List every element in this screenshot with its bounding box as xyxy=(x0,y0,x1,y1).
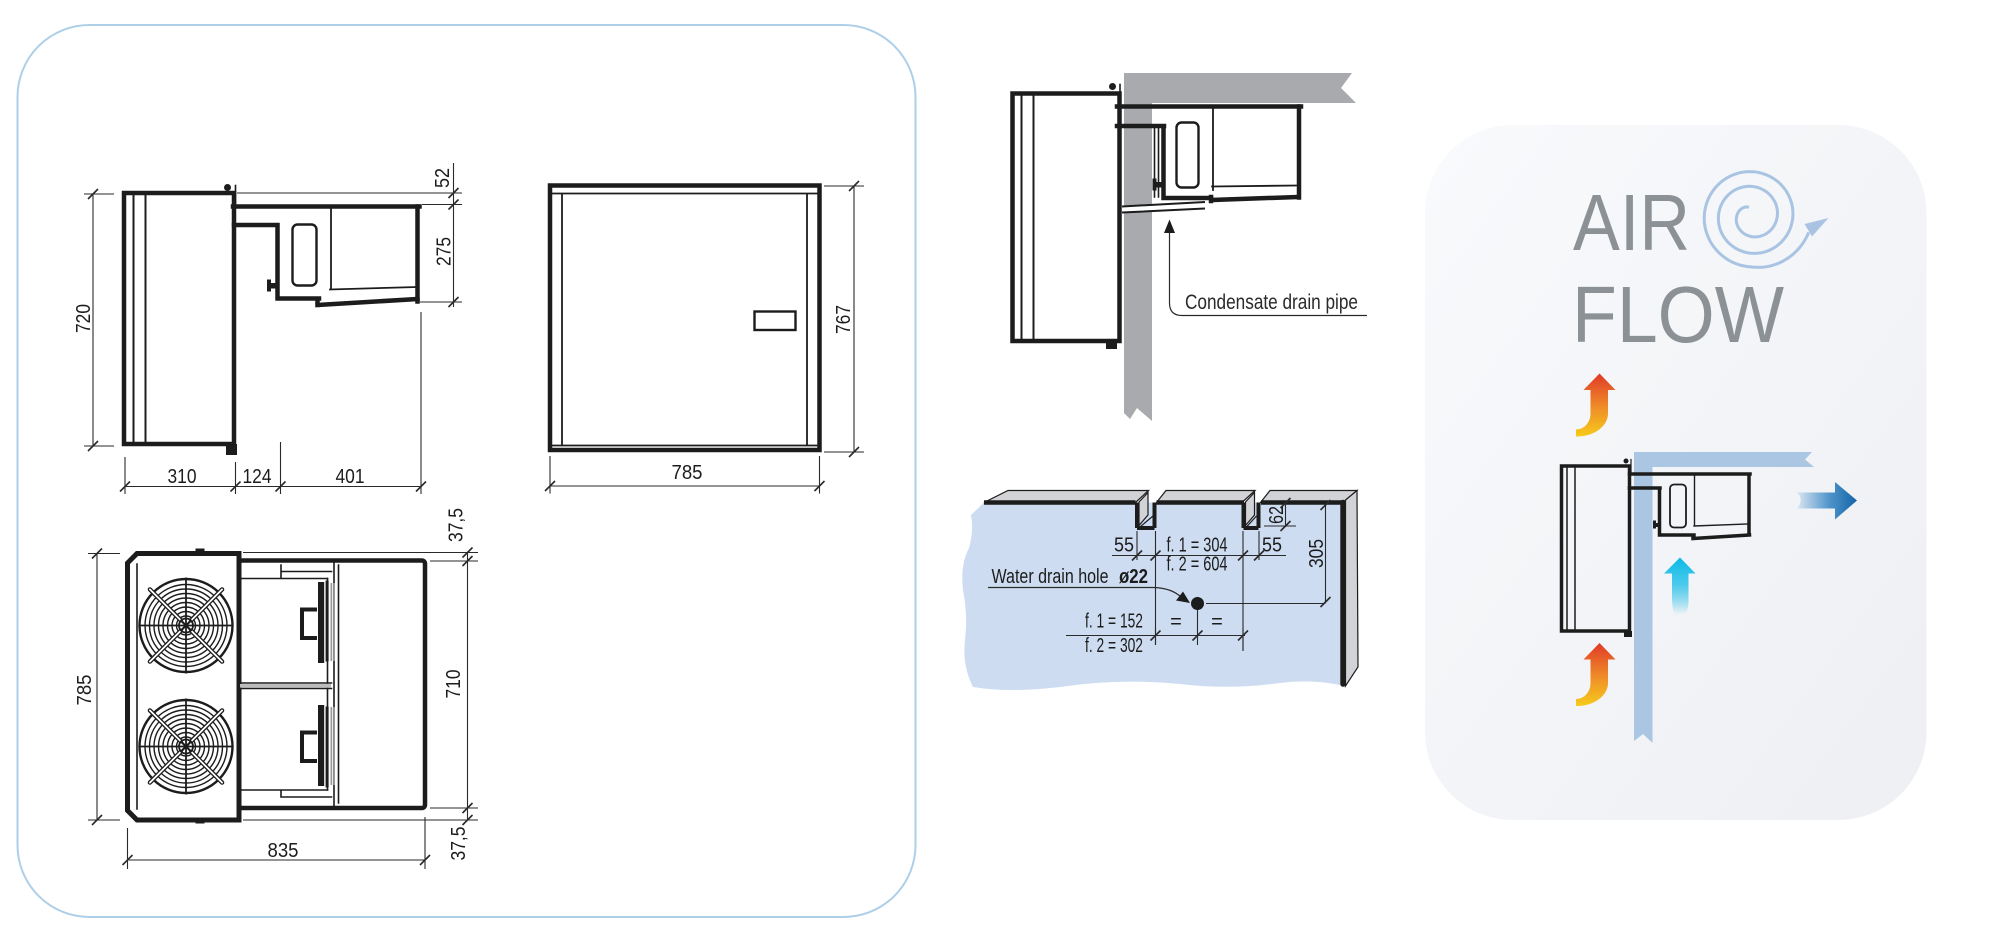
svg-text:37,5: 37,5 xyxy=(446,508,468,542)
svg-text:f. 2 = 604: f. 2 = 604 xyxy=(1167,554,1228,576)
svg-text:62: 62 xyxy=(1266,506,1288,524)
svg-text:124: 124 xyxy=(243,466,272,488)
svg-text:FLOW: FLOW xyxy=(1572,270,1784,359)
svg-text:720: 720 xyxy=(73,304,95,333)
svg-text:55: 55 xyxy=(1114,535,1134,557)
svg-text:310: 310 xyxy=(168,466,197,488)
svg-text:f. 2 = 302: f. 2 = 302 xyxy=(1085,635,1143,657)
svg-text:710: 710 xyxy=(443,670,465,699)
svg-text:=: = xyxy=(1170,611,1182,633)
svg-text:37,5: 37,5 xyxy=(448,827,470,861)
svg-text:Water drain hole: Water drain hole xyxy=(992,566,1109,588)
svg-text:Condensate drain pipe: Condensate drain pipe xyxy=(1185,291,1358,314)
svg-text:AIR: AIR xyxy=(1573,178,1690,267)
svg-text:835: 835 xyxy=(268,840,299,862)
svg-text:305: 305 xyxy=(1306,539,1328,568)
svg-text:401: 401 xyxy=(336,466,365,488)
svg-text:55: 55 xyxy=(1262,535,1282,557)
svg-text:275: 275 xyxy=(434,237,456,266)
svg-text:ø22: ø22 xyxy=(1119,566,1148,588)
svg-text:=: = xyxy=(1211,611,1223,633)
svg-text:785: 785 xyxy=(672,462,703,484)
svg-text:f. 1 = 152: f. 1 = 152 xyxy=(1085,611,1143,633)
svg-text:767: 767 xyxy=(833,305,855,334)
svg-text:785: 785 xyxy=(74,675,96,706)
svg-text:52: 52 xyxy=(432,168,454,188)
